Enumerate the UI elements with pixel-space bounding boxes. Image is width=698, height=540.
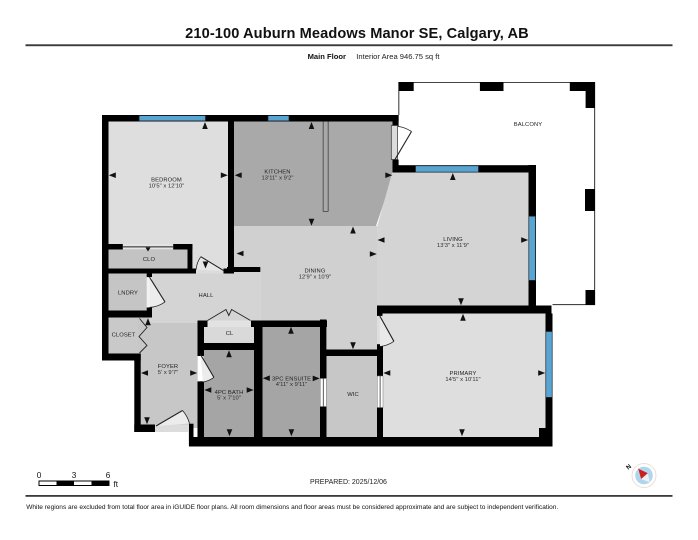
svg-text:13'11" x 9'2": 13'11" x 9'2" [261,175,293,181]
svg-text:14'5" x 10'11": 14'5" x 10'11" [445,377,480,383]
svg-text:CL: CL [226,331,234,337]
svg-text:10'5" x 12'10": 10'5" x 12'10" [149,183,185,189]
svg-text:3: 3 [72,471,77,480]
svg-text:210-100 Auburn Meadows Manor S: 210-100 Auburn Meadows Manor SE, Calgary… [185,26,529,42]
svg-text:CLOSET: CLOSET [112,332,136,338]
svg-text:13'3" x 11'9": 13'3" x 11'9" [437,243,469,249]
svg-text:WIC: WIC [347,392,359,398]
svg-text:BALCONY: BALCONY [514,122,542,128]
svg-text:5' x 7'10": 5' x 7'10" [217,396,241,402]
svg-text:Main Floor: Main Floor [308,52,346,61]
svg-text:PREPARED: 2025/12/06: PREPARED: 2025/12/06 [310,479,387,486]
svg-text:12'9" x 10'9": 12'9" x 10'9" [299,275,331,281]
svg-text:5' x 9'7": 5' x 9'7" [158,370,179,376]
svg-text:Interior Area 946.75 sq ft: Interior Area 946.75 sq ft [356,52,440,61]
svg-text:0: 0 [37,471,42,480]
svg-text:White regions are excluded fro: White regions are excluded from total fl… [26,504,558,511]
svg-text:HALL: HALL [199,293,215,299]
svg-text:LNDRY: LNDRY [118,290,138,296]
svg-text:ft: ft [114,480,119,489]
svg-text:6: 6 [106,471,111,480]
svg-text:CLO: CLO [143,257,156,263]
svg-text:4'11" x 9'11": 4'11" x 9'11" [276,382,308,388]
